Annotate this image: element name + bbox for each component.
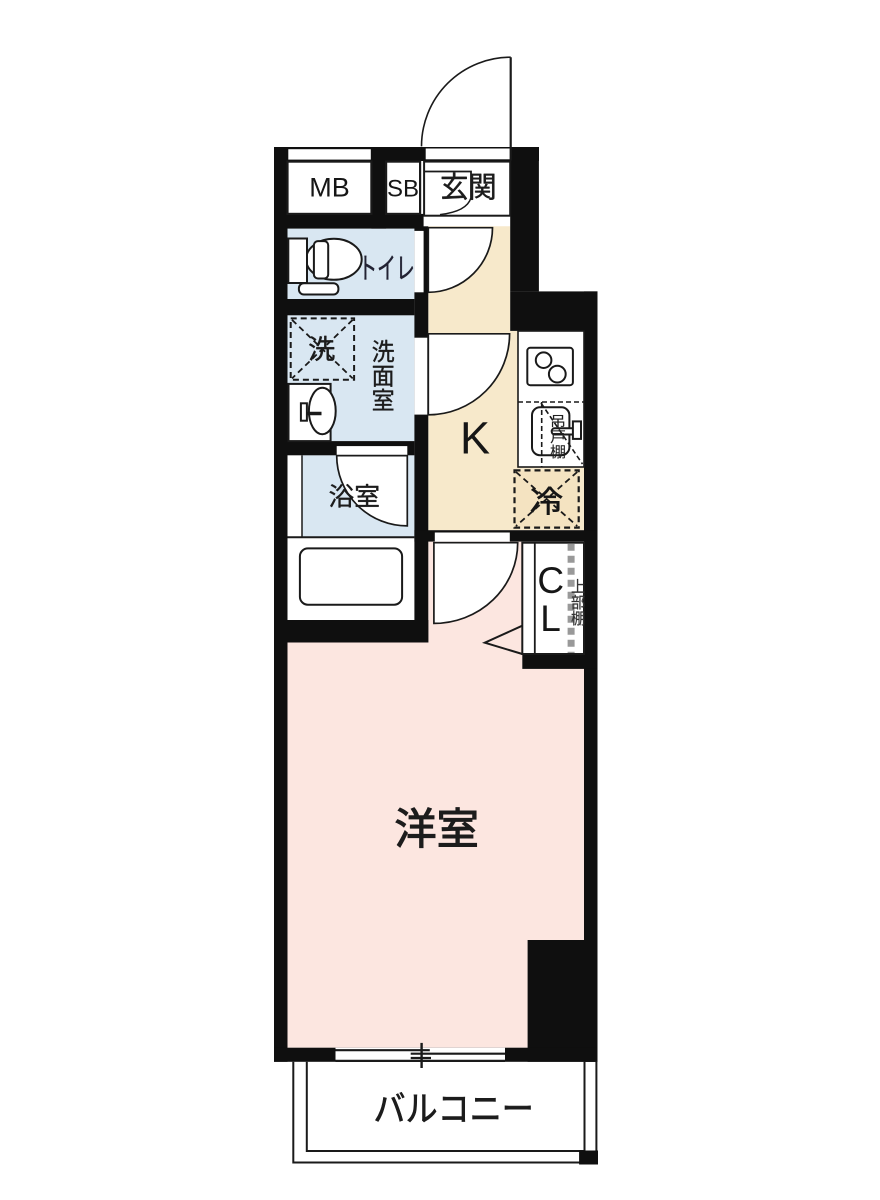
svg-text:K: K bbox=[460, 412, 490, 463]
svg-text:SB: SB bbox=[387, 176, 419, 203]
svg-text:L: L bbox=[540, 598, 561, 639]
svg-text:C: C bbox=[537, 560, 564, 601]
svg-text:MB: MB bbox=[309, 173, 350, 203]
